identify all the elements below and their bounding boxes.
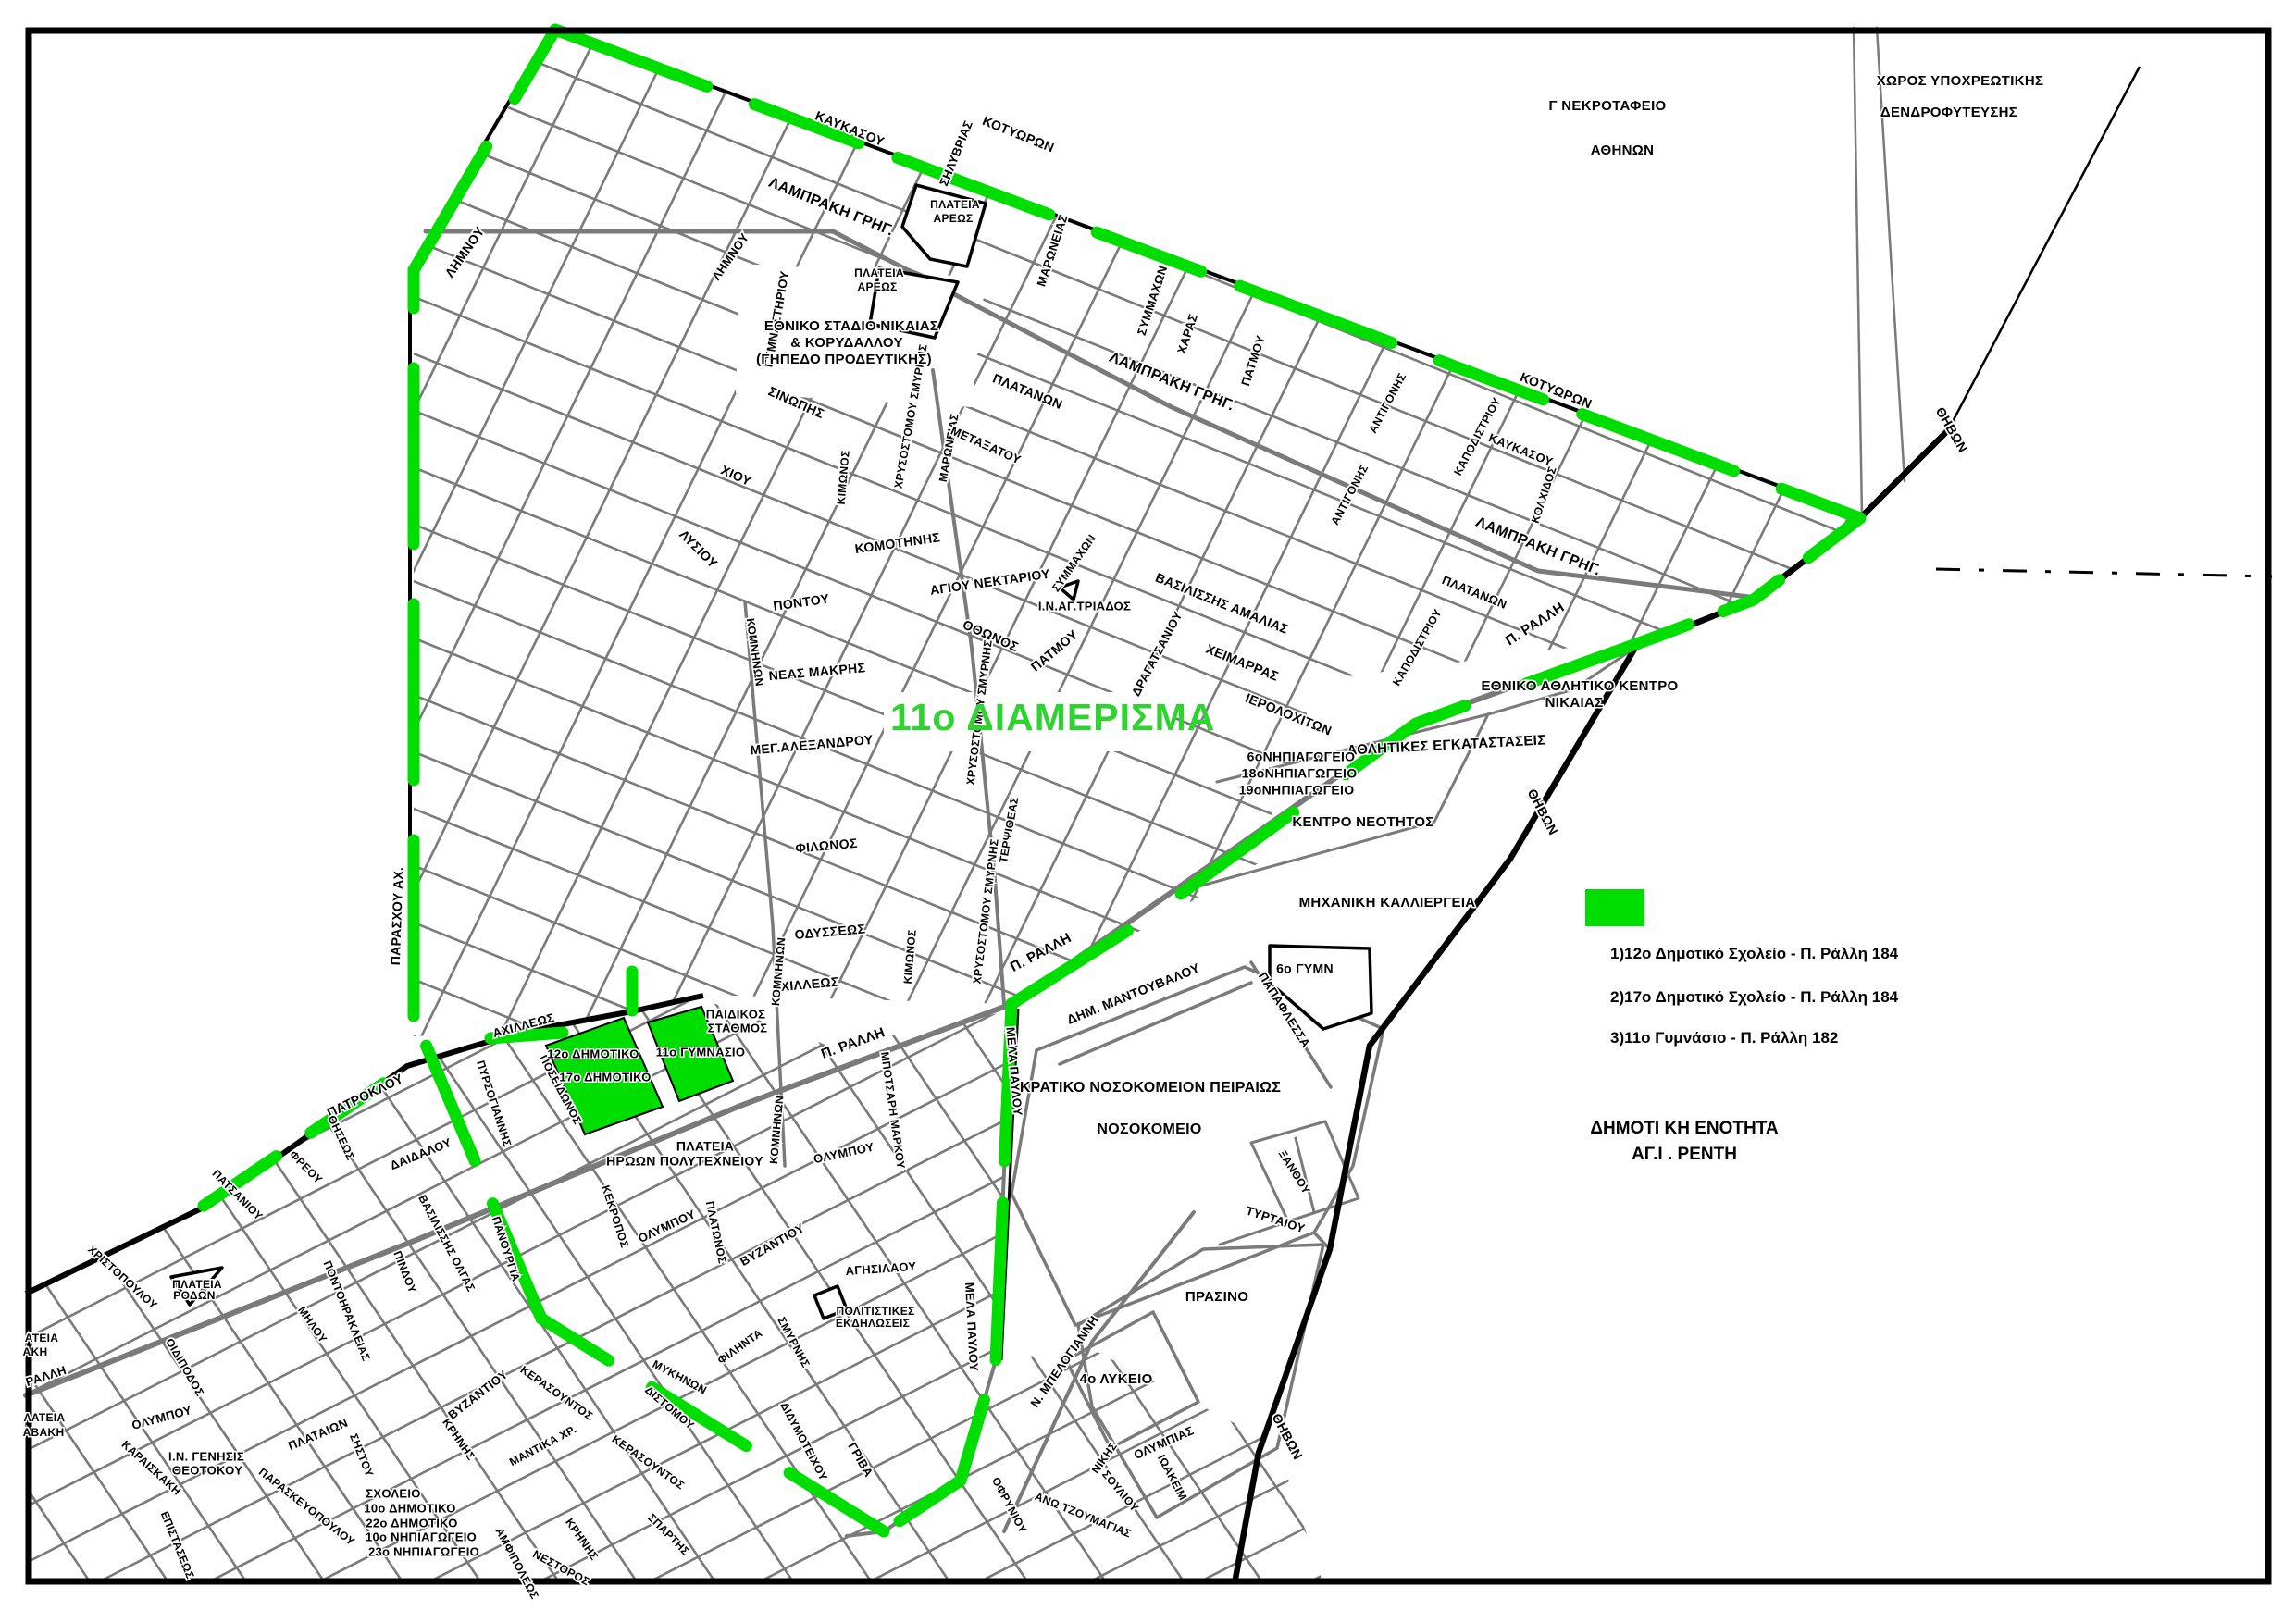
legend-item-3: 3)11ο Γυμνάσιο - Π. Ράλλη 182 xyxy=(1610,1029,1838,1047)
grid-street-line xyxy=(1079,0,2296,1623)
street-label: ΜΕΓ.ΑΛΕΞΑΝΔΡΟΥ xyxy=(750,732,874,758)
region-label: ΚΕΝΤΡΟ ΝΕΟΤΗΤΟΣ xyxy=(1292,814,1433,830)
legend-item-2: 2)17ο Δημοτικό Σχολείο - Π. Ράλλη 184 xyxy=(1610,988,1898,1007)
street-label: ΒΥΖΑΝΤΙΟΥ xyxy=(738,1220,807,1269)
region-label: & ΚΟΡΥΔΑΛΛΟΥ xyxy=(790,335,903,351)
street-label: ΔΑΙΔΑΛΟΥ xyxy=(388,1135,453,1172)
street-label: ΟΛΥΜΠΟΥ xyxy=(813,1140,875,1167)
grid-street-line xyxy=(0,823,2240,1623)
street-label: ΘΗΣΕΩΣ xyxy=(325,1113,357,1162)
grid-street-line xyxy=(113,0,2296,45)
grid-street-line xyxy=(0,0,1485,846)
region-label: ΠΛΑΤΕΙΑ xyxy=(676,1139,734,1154)
region-label: ΕΘΝΙΚΟ ΣΤΑΔΙΟ ΝΙΚΑΙΑΣ xyxy=(764,318,938,334)
region-label: ΠΛΑΤΕΙΑ xyxy=(930,198,980,211)
boundary-road xyxy=(1936,569,2272,576)
street-label: ΧΑΡΑΣ xyxy=(1174,312,1200,355)
grid-street-line xyxy=(0,1165,2102,1623)
street-label: ΚΕΚΡΟΠΟΣ xyxy=(599,1183,631,1249)
street-label: ΑΓΗΣΙΛΑΟΥ xyxy=(845,1259,917,1278)
region-label: (ΓΗΠΕΔΟ ΠΡΟΔΕΥΤΙΚΗΣ) xyxy=(756,352,932,367)
street-label: ΚΙΜΩΝΟΣ xyxy=(835,450,852,505)
region-label: ΑΡΕΩΣ xyxy=(858,280,898,293)
region-label: ΝΙΚΑΙΑΣ xyxy=(1545,695,1604,711)
street-label: ΦΙΛΩΝΟΣ xyxy=(795,836,859,856)
region-label: ΘΕΟΤΟΚΟΥ xyxy=(172,1463,242,1477)
region-label: ΛΑΤΕΙΑ xyxy=(24,1411,66,1424)
region-label: 19οΝΗΠΙΑΓΩΓΕΙΟ xyxy=(1239,783,1355,798)
region-label: ΑΤΕΙΑ xyxy=(25,1332,59,1344)
grid-street-line xyxy=(331,0,2091,1623)
grid-street-line xyxy=(0,41,2296,1220)
street-label: ΑΓΙΟΥ ΝΕΚΤΑΡΙΟΥ xyxy=(929,566,1051,598)
region-label: 11ο ΓΥΜΝΑΣΙΟ xyxy=(656,1045,746,1059)
region-label: ΠΑΙΔΙΚΟΣ xyxy=(706,1007,765,1021)
grid-street-line xyxy=(814,0,2296,1623)
street-label: ΟΛΥΜΠΟΥ xyxy=(130,1403,193,1432)
street-label: ΛΥΣΙΟΥ xyxy=(676,527,721,571)
street-label: ΑΝΤΙΓΟΝΗΣ xyxy=(1366,371,1409,436)
street-label: ΜΗΛΟΥ xyxy=(295,1304,329,1345)
street-label: ΠΑΤΜΟΥ xyxy=(1028,626,1081,675)
region-label: ΧΩΡΟΣ ΥΠΟΧΡΕΩΤΙΚΗΣ xyxy=(1877,73,2044,89)
legend-swatch xyxy=(1585,889,1644,926)
region-label: 23ο ΝΗΠΙΑΓΩΓΕΙΟ xyxy=(368,1544,479,1558)
street-label: ΓΡΙΒΑ xyxy=(845,1440,875,1480)
street-label: ΠΑΡΑΣΧΟΥ ΑΧ. xyxy=(388,866,406,965)
street-label: ΒΑΣΙΛΙΣΣΗΣ ΟΛΓΑΣ xyxy=(416,1193,478,1294)
street-label: ΤΕΡΨΙΘΕΑΣ xyxy=(997,796,1021,864)
region-label: ΜΗΧΑΝΙΚΗ ΚΑΛΛΙΕΡΓΕΙΑ xyxy=(1299,895,1476,911)
region-label: ΠΟΛΙΤΙΣΤΙΚΕΣ xyxy=(836,1305,914,1318)
district-boundary xyxy=(1657,518,1860,637)
boundary-road xyxy=(1948,67,2140,430)
region-label: ΠΡΑΣΙΝΟ xyxy=(1185,1289,1248,1305)
street-label: ΠΟΝΤΟΗΡΑΚΛΕΙΑΣ xyxy=(321,1258,373,1362)
street-label: ΜΑΝΤΙΚΑ ΧΡ. xyxy=(507,1422,578,1468)
street-label: ΚΟΜΝΗΝΩΝ xyxy=(769,936,788,1006)
street-label: ΜΠΟΤΣΑΡΗ ΜΑΡΚΟΥ xyxy=(878,1051,908,1170)
region-label: 6ο ΓΥΜΝ xyxy=(1276,961,1334,976)
street-label: Ι.Ν.ΑΓ.ΤΡΙΑΔΟΣ xyxy=(1038,599,1131,613)
region-label: ΗΡΩΩΝ ΠΟΛΥΤΕΧΝΕΙΟΥ xyxy=(606,1154,763,1169)
region-label: ΣΤΑΘΜΟΣ xyxy=(708,1021,768,1035)
map-page: ΚΑΥΚΑΣΟΥΚΟΤΥΩΡΩΝΛΑΜΠΡΑΚΗ ΓΡΗΓ.ΛΗΜΝΟΥΛΗΜΝ… xyxy=(0,0,2296,1623)
grid-street-line xyxy=(1016,0,2296,1623)
street-label: ΤΥΡΤΑΙΟΥ xyxy=(1245,1204,1308,1236)
street-label: ΣΗΣΤΟΥ xyxy=(347,1431,376,1479)
region-label: ΚΡΑΤΙΚΟ ΝΟΣΟΚΟΜΕΙΟΝ ΠΕΙΡΑΙΩΣ xyxy=(1020,1080,1281,1096)
district-map: ΚΑΥΚΑΣΟΥΚΟΤΥΩΡΩΝΛΑΜΠΡΑΚΗ ΓΡΗΓ.ΛΗΜΝΟΥΛΗΜΝ… xyxy=(0,0,2296,1623)
grid-street-line xyxy=(1522,0,2296,1623)
street-label: ΒΥΖΑΝΤΙΟΥ xyxy=(445,1367,510,1422)
street-label: ΠΛΑΤΑΙΩΝ xyxy=(286,1416,350,1454)
street-label: ΦΡΕΟΥ xyxy=(287,1148,325,1186)
region-label: ΔΕΝΔΡΟΦΥΤΕΥΣΗΣ xyxy=(1880,105,2017,120)
region-label: 4ο ΛΥΚΕΙΟ xyxy=(1079,1371,1152,1387)
grid-street-line xyxy=(1585,0,2296,1623)
street-label: ΣΜΥΡΝΗΣ xyxy=(776,1315,813,1369)
street-label: ΔΡΑΓΑΤΣΑΝΙΟΥ xyxy=(1129,609,1185,699)
grid-street-line xyxy=(0,0,626,1360)
grid-street-line xyxy=(0,0,815,1453)
region-label: ΑΡΕΩΣ xyxy=(934,212,974,225)
street-label: ΚΟΜΟΤΗΝΗΣ xyxy=(854,529,941,556)
grid-street-line xyxy=(0,753,2166,1623)
grid-street-line xyxy=(0,57,1446,1623)
region-label: 6οΝΗΠΙΑΓΩΓΕΙΟ xyxy=(1247,750,1356,764)
municipal-unit-line1: ΔΗΜΟΤΙ ΚΗ ΕΝΟΤΗΤΑ xyxy=(1564,1116,1805,1142)
grid-street-line xyxy=(0,1109,2296,1623)
district-title: 11ο ΔΙΑΜΕΡΙΣΜΑ xyxy=(890,696,1215,739)
grid-street-line xyxy=(0,798,2189,1623)
region-label: ΠΛΑΤΕΙΑ xyxy=(854,266,904,279)
region-label: ΕΚΔΗΛΩΣΕΙΣ xyxy=(836,1317,910,1330)
grid-street-line xyxy=(0,308,1940,1623)
grid-street-line xyxy=(0,0,2296,681)
legend-item-1: 1)12ο Δημοτικό Σχολείο - Π. Ράλλη 184 xyxy=(1610,945,1898,963)
street-label: ΠΛΑΤΑΝΩΝ xyxy=(990,370,1064,412)
grid-street-line xyxy=(0,383,962,1623)
grid-street-line xyxy=(0,1019,2161,1623)
grid-street-line xyxy=(1648,0,2296,1623)
region-label: ΑΘΗΝΩΝ xyxy=(1591,142,1654,158)
road xyxy=(1877,28,1905,481)
grid-street-line xyxy=(0,0,2296,925)
street-label: Π. ΡΑΛΛΗ xyxy=(1503,600,1568,650)
street-label: ΚΡΗΝΗΣ xyxy=(563,1516,601,1562)
street-label: ΦΙΛΗΝΤΑ xyxy=(715,1327,765,1367)
street-label: ΟΔΥΣΣΕΩΣ xyxy=(794,921,866,942)
street-label: ΚΟΜΝΗΝΩΝ xyxy=(744,617,766,687)
grid-street-line xyxy=(0,0,689,1391)
street-label: ΕΠΙΣΤΑΣΕΩΣ xyxy=(158,1509,197,1580)
region-label: 10ο ΔΗΜΟΤΙΚΟ xyxy=(364,1501,455,1515)
street-label: ΚΕΡΑΣΟΥΝΤΟΣ xyxy=(518,1363,596,1422)
road xyxy=(1060,983,1251,1064)
region-label: 22ο ΔΗΜΟΤΙΚΟ xyxy=(366,1516,457,1530)
region-label: ΑΚΗ xyxy=(23,1345,48,1358)
street-label: ΟΦΡΥΝΙΟΥ xyxy=(989,1475,1030,1535)
street-label: ΠΙΝΔΟΥ xyxy=(391,1249,419,1295)
region-label: Ι.Ν. ΓΕΝΗΣΙΣ xyxy=(168,1449,244,1463)
street-label: ΚΟΛΧΙΔΟΣ xyxy=(1529,465,1559,525)
street-label: ΠΑΡΑΣΚΕΥΟΠΟΥΛΟΥ xyxy=(256,1466,357,1549)
street-label: ΜΕΛΑ ΠΑΥΛΟΥ xyxy=(962,1282,981,1371)
region-label: Γ ΝΕΚΡΟΤΑΦΕΙΟ xyxy=(1548,98,1666,114)
region-label: ΣΧΟΛΕΙΟ xyxy=(366,1486,420,1500)
municipal-unit-line2: ΑΓ.Ι . ΡΕΝΤΗ xyxy=(1564,1142,1805,1168)
street-label: ΠΛΑΤΩΝΟΣ xyxy=(703,1200,729,1265)
street-label: ΞΑΝΘΟΥ xyxy=(1276,1147,1313,1196)
street-label: ΠΑΤΜΟΥ xyxy=(1238,333,1268,388)
grid-street-line xyxy=(0,0,751,1422)
region-label: 12ο ΔΗΜΟΤΙΚΟ xyxy=(547,1047,639,1060)
grid-street-line xyxy=(953,0,2296,1623)
grid-street-line xyxy=(0,1198,2296,1623)
street-label: ΘΗΒΩΝ xyxy=(1269,1411,1305,1462)
street-label: ΚΟΤΥΩΡΩΝ xyxy=(980,113,1056,155)
grid-street-line xyxy=(0,1555,2296,1623)
region-label: ΕΘΝΙΚΟ ΑΘΛΗΤΙΚΟ ΚΕΝΤΡΟ xyxy=(1481,678,1678,694)
grid-street-line xyxy=(0,1599,2296,1623)
region-label: 10ο ΝΗΠΙΑΓΩΓΕΙΟ xyxy=(366,1530,477,1543)
region-label: 17ο ΔΗΜΟΤΙΚΟ xyxy=(559,1070,651,1084)
grid-street-line xyxy=(14,0,2296,290)
municipal-unit-label: ΔΗΜΟΤΙ ΚΗ ΕΝΟΤΗΤΑ ΑΓ.Ι . ΡΕΝΤΗ xyxy=(1564,1116,1805,1168)
grid-street-line xyxy=(0,263,1917,1623)
street-label: ΣΟΥΛΙΟΥ xyxy=(1099,1468,1141,1514)
street-label: ΠΟΝΤΟΥ xyxy=(772,590,830,613)
street-label: ΠΥΡΣΟΓΙΑΝΝΗΣ xyxy=(474,1059,514,1148)
street-label: ΣΠΑΡΤΗΣ xyxy=(645,1511,692,1558)
grid-street-line xyxy=(117,0,1876,1623)
street-label: ΣΥΜΜΑΧΩΝ xyxy=(1135,264,1170,337)
street-label: ΟΙΔΙΠΟΔΟΣ xyxy=(163,1336,206,1398)
street-label: ΚΙΜΩΝΟΣ xyxy=(901,929,919,985)
region-label: 18οΝΗΠΙΑΓΩΓΕΙΟ xyxy=(1242,766,1358,781)
street-label: ΘΗΒΩΝ xyxy=(1933,404,1971,455)
grid-street-line xyxy=(0,0,2296,1121)
grid-street-line xyxy=(0,432,2296,1611)
grid-street-line xyxy=(1458,0,2296,1623)
region-label: ΑΒΑΚΗ xyxy=(23,1426,65,1439)
road xyxy=(1854,28,1862,516)
region-label: ΝΟΣΟΚΟΜΕΙΟ xyxy=(1097,1121,1201,1137)
street-label: ΝΕΑΣ ΜΑΚΡΗΣ xyxy=(768,660,866,683)
grid-street-line xyxy=(0,709,2143,1623)
region-label: ΡΟΔΩΝ xyxy=(173,1289,215,1302)
grid-street-line xyxy=(34,0,2296,242)
grid-street-line xyxy=(73,0,2296,143)
